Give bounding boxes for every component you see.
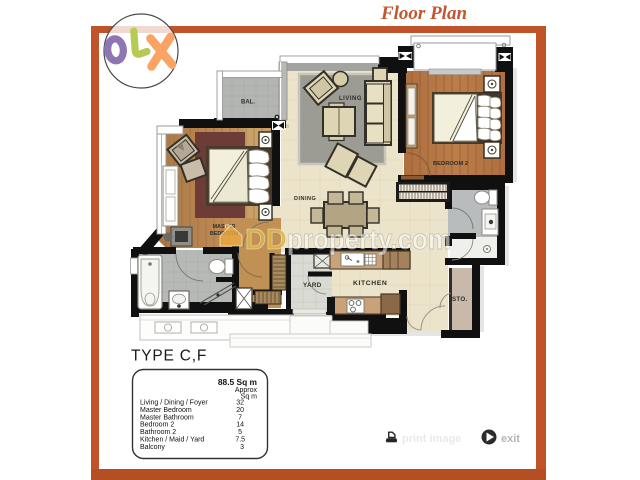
svg-text:TYPE C,F: TYPE C,F [131, 348, 207, 365]
svg-text:LIVING: LIVING [339, 96, 362, 102]
svg-text:STO.: STO. [452, 296, 468, 303]
svg-text:DINING: DINING [294, 196, 316, 202]
svg-text:KITCHEN: KITCHEN [353, 280, 387, 287]
svg-text:exit: exit [501, 433, 520, 445]
svg-text:BEDROOM 2: BEDROOM 2 [433, 161, 468, 167]
svg-text:YARD: YARD [303, 282, 322, 289]
svg-text:88.5 Sq m: 88.5 Sq m [218, 377, 257, 387]
svg-text:32 20 7 14 5 7.5 3: 32 20 7 14 5 7.5 3 [235, 400, 247, 451]
svg-text:property.com: property.com [287, 224, 451, 256]
svg-text:BAL.: BAL. [241, 100, 255, 106]
svg-text:DD: DD [245, 224, 287, 256]
svg-text:print image: print image [402, 433, 461, 445]
svg-text:Floor Plan: Floor Plan [380, 3, 467, 24]
